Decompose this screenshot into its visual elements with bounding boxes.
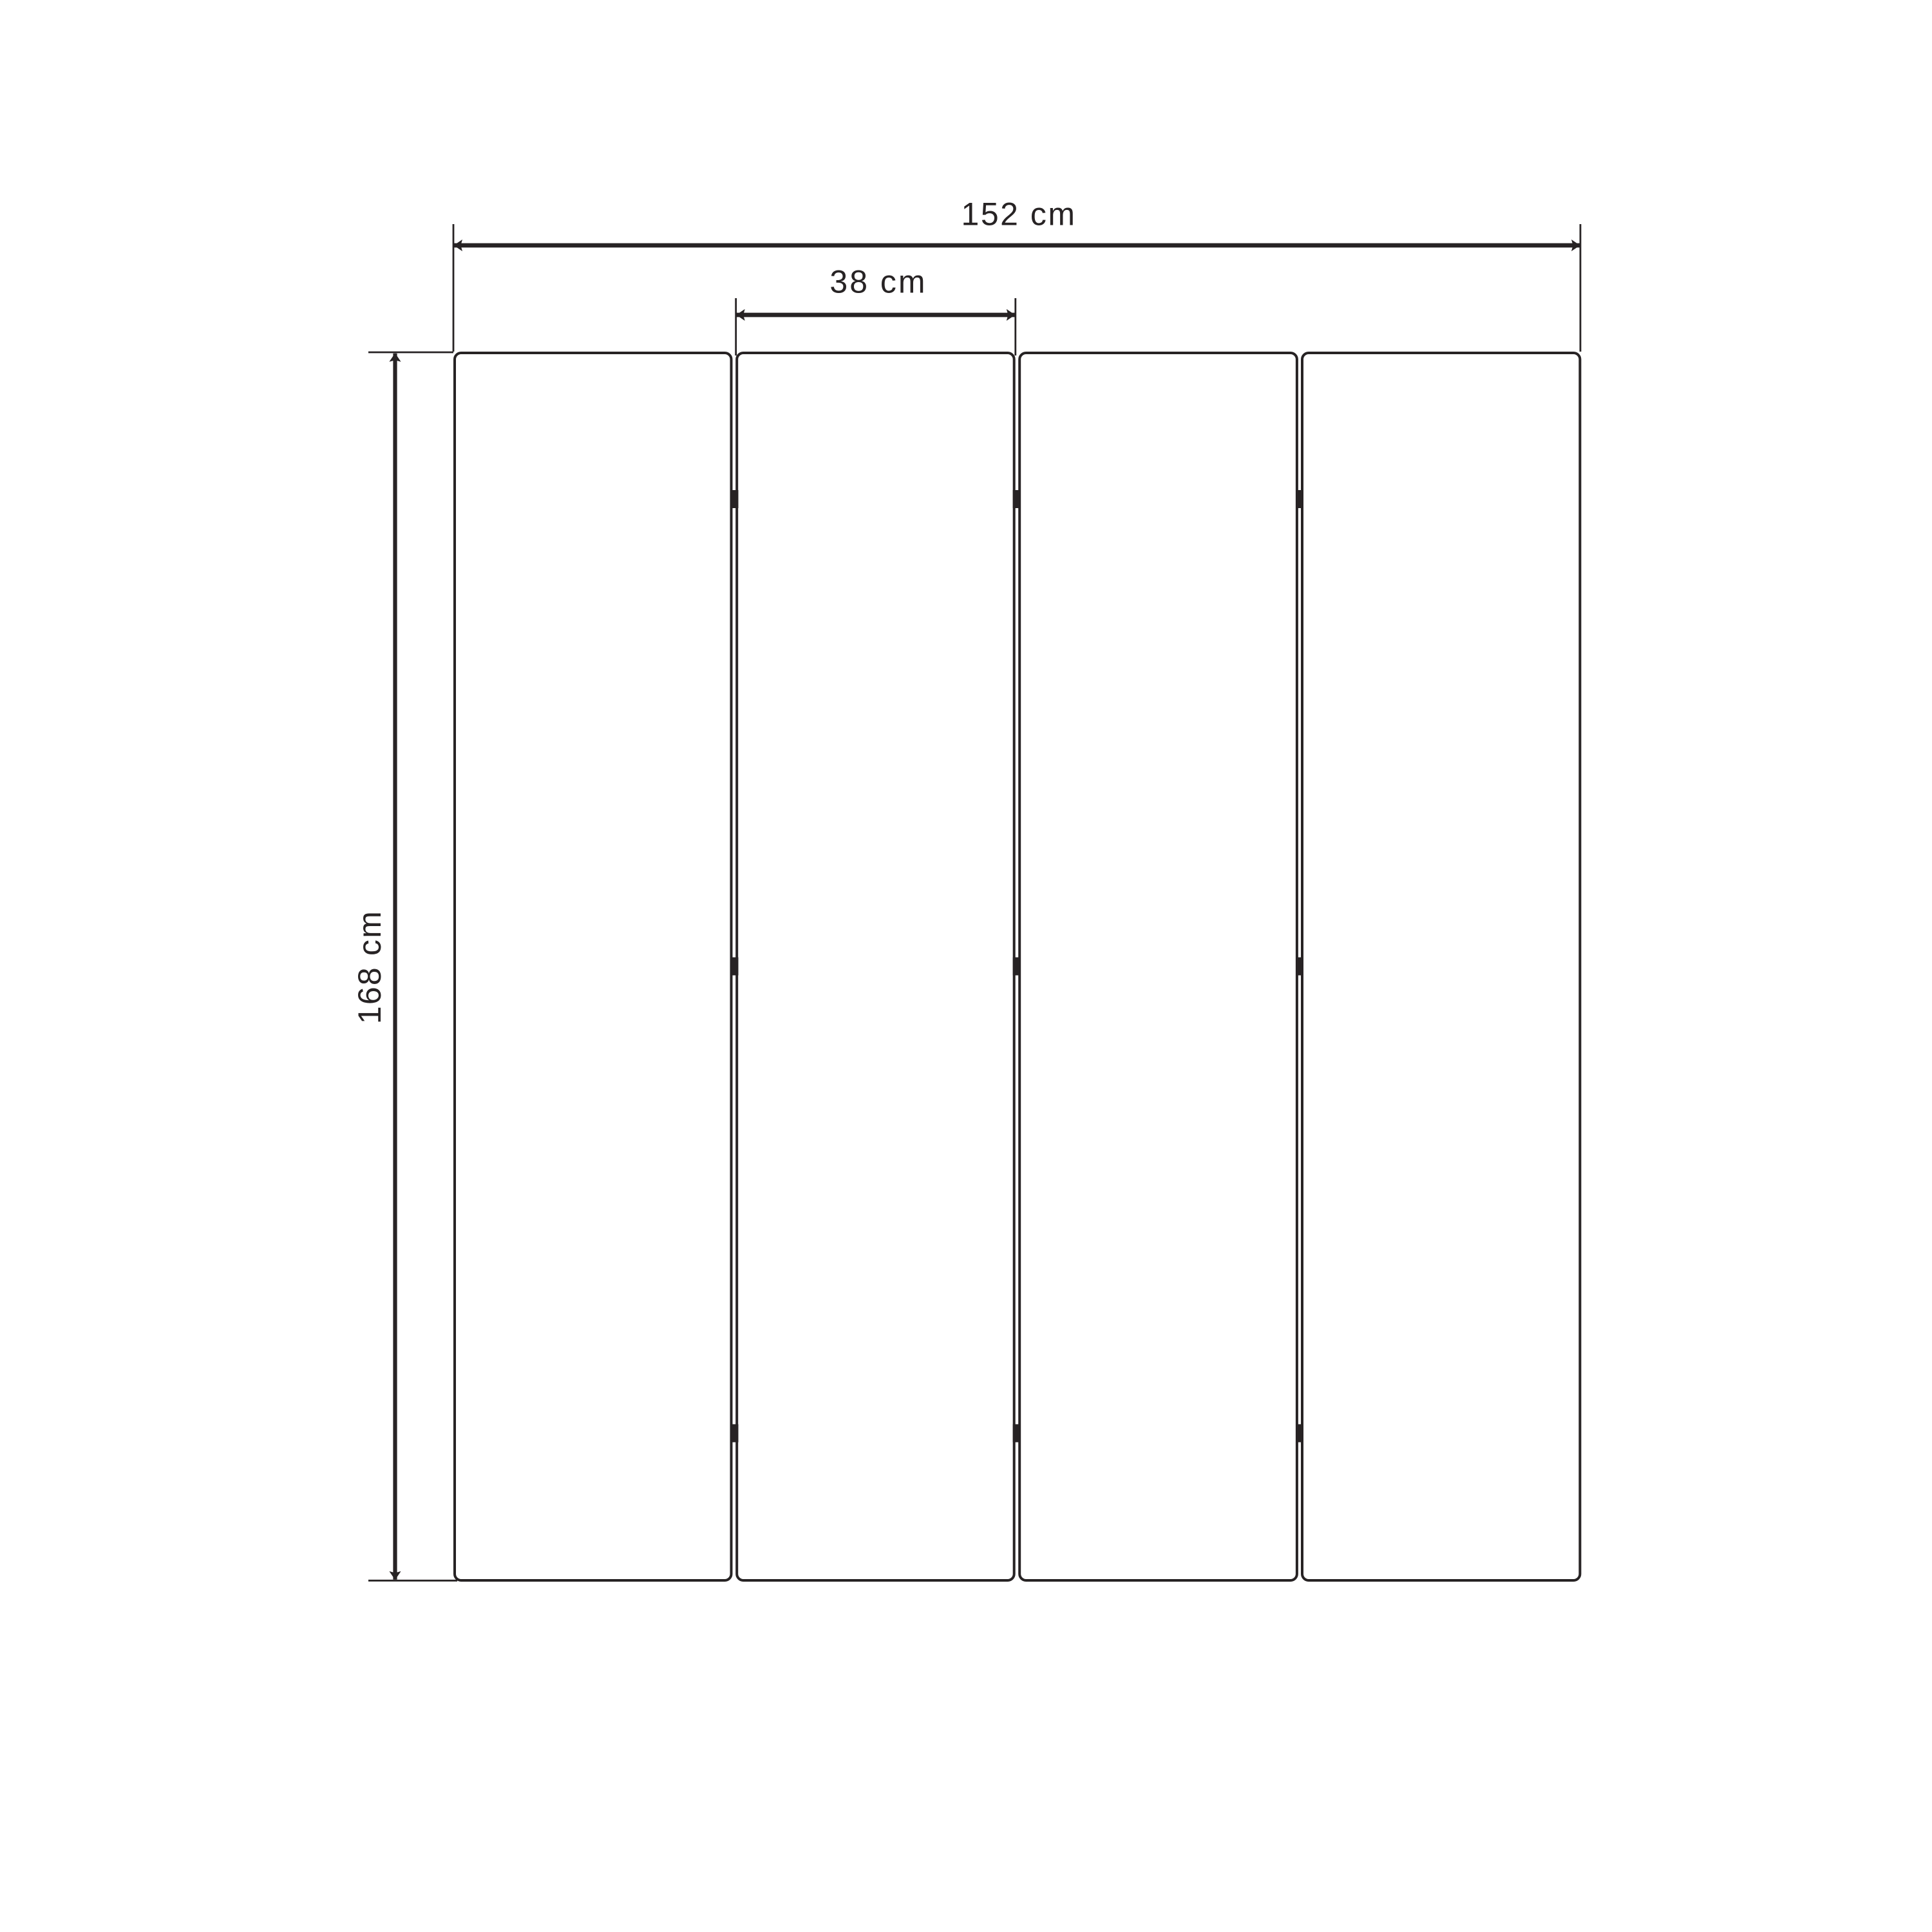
svg-text:168 cm: 168 cm	[352, 910, 388, 1024]
svg-text:152 cm: 152 cm	[961, 196, 1077, 232]
svg-text:38 cm: 38 cm	[829, 264, 927, 300]
